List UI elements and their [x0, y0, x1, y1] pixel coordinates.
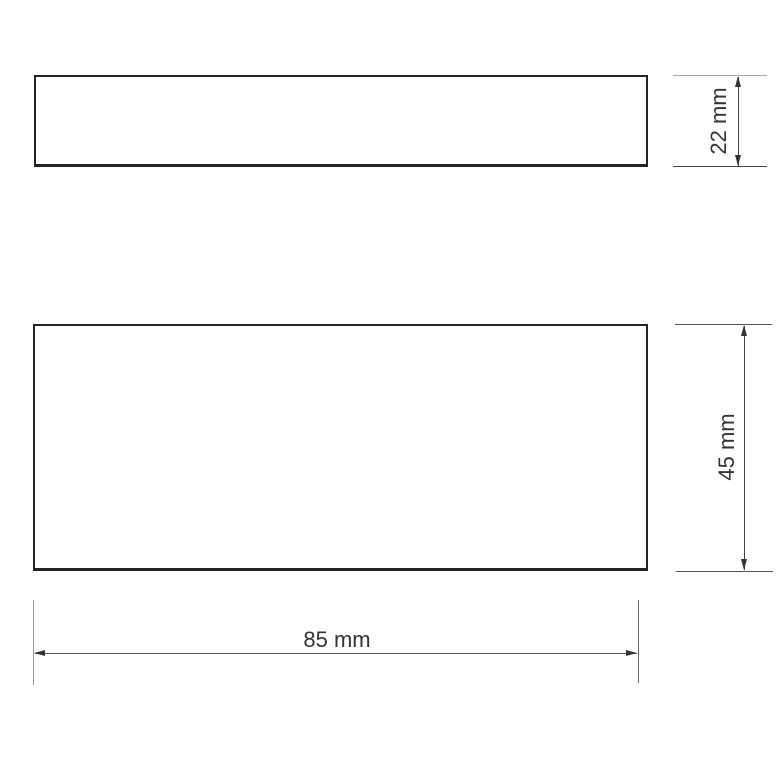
- extension-line-22mm-top: [673, 75, 767, 76]
- arrowhead-left-icon: [34, 650, 45, 656]
- extension-line-45mm-bottom: [676, 571, 773, 572]
- technical-drawing-canvas: 22 mm 45 mm 85 mm: [0, 0, 781, 775]
- extension-line-85mm-left: [33, 600, 34, 685]
- arrowhead-up-icon: [741, 325, 747, 336]
- dimension-label-width: 85 mm: [303, 629, 370, 651]
- dimension-label-thickness: 22 mm: [708, 87, 730, 154]
- arrowhead-right-icon: [626, 650, 637, 656]
- dimension-line-45mm: [744, 326, 745, 570]
- side-view-rectangle: [34, 75, 648, 167]
- extension-line-22mm-bottom: [673, 166, 767, 167]
- front-view-rectangle: [33, 324, 648, 571]
- dimension-line-22mm: [738, 77, 739, 166]
- arrowhead-down-icon: [735, 155, 741, 166]
- extension-line-85mm-right: [638, 600, 639, 683]
- extension-line-45mm-top: [675, 324, 772, 325]
- arrowhead-up-icon: [735, 76, 741, 87]
- dimension-line-85mm: [35, 653, 637, 654]
- dimension-label-height: 45 mm: [716, 413, 738, 480]
- arrowhead-down-icon: [741, 559, 747, 570]
